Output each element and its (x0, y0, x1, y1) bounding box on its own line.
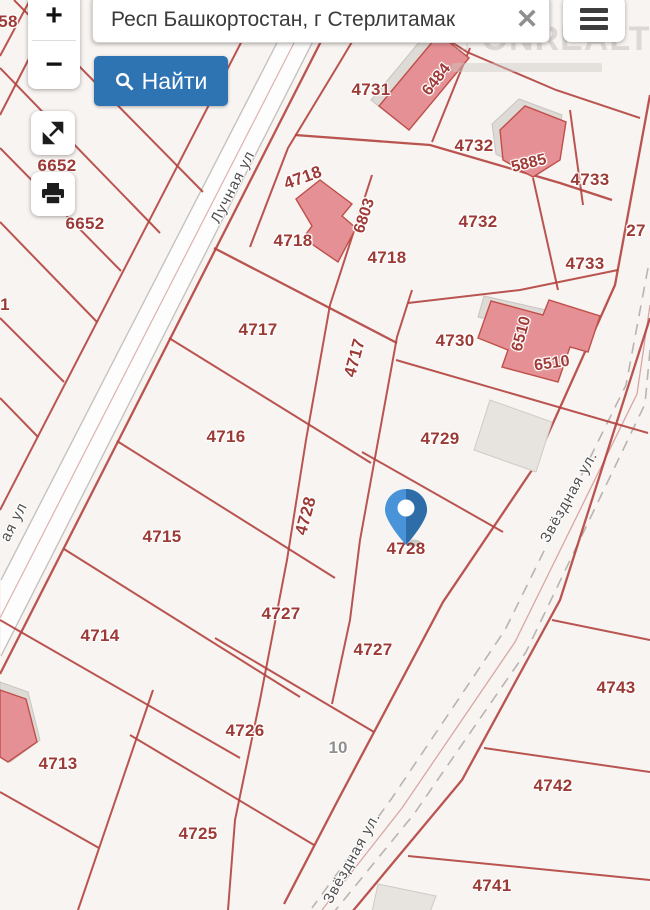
clear-search-button[interactable]: ✕ (505, 4, 549, 35)
printer-icon (41, 183, 65, 205)
zoom-control: + − (28, 0, 80, 89)
search-input[interactable] (109, 7, 505, 33)
print-button[interactable] (31, 172, 75, 216)
menu-button[interactable] (563, 0, 625, 42)
find-button[interactable]: Найти (94, 56, 228, 106)
zoom-in-button[interactable]: + (28, 0, 80, 40)
search-icon (115, 72, 134, 91)
expand-arrows-icon (41, 121, 65, 145)
location-pin (384, 488, 428, 548)
zoom-out-button[interactable]: − (28, 41, 80, 89)
find-button-label: Найти (142, 68, 208, 95)
search-box: ✕ (92, 0, 550, 43)
map-app: 5866526652147316484473258854733471868034… (0, 0, 650, 910)
fullscreen-button[interactable] (31, 111, 75, 155)
map-canvas[interactable] (0, 0, 650, 910)
